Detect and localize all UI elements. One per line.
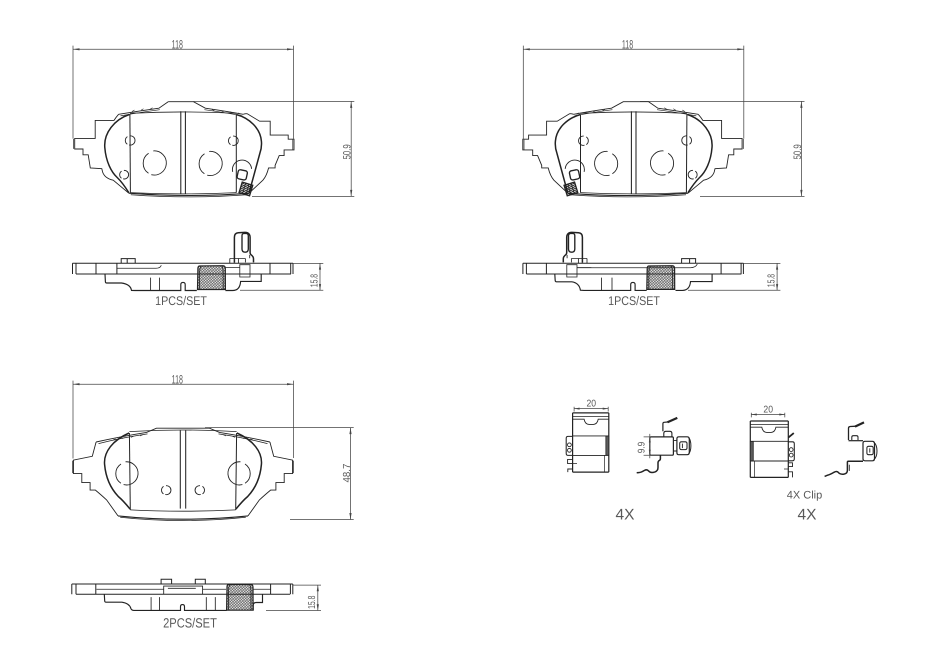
svg-text:118: 118 (622, 38, 633, 52)
svg-text:50.9: 50.9 (342, 144, 354, 159)
svg-text:15.8: 15.8 (767, 274, 778, 288)
svg-text:4X: 4X (798, 507, 818, 524)
svg-text:20: 20 (763, 404, 773, 415)
svg-text:20: 20 (587, 399, 597, 410)
svg-text:15.8: 15.8 (309, 274, 320, 288)
svg-text:4X Clip: 4X Clip (787, 490, 822, 502)
svg-text:50.9: 50.9 (792, 144, 804, 159)
svg-text:2PCS/SET: 2PCS/SET (163, 615, 217, 630)
svg-text:118: 118 (172, 373, 183, 387)
svg-text:4X: 4X (616, 507, 636, 524)
svg-text:15.8: 15.8 (307, 595, 318, 609)
svg-text:1PCS/SET: 1PCS/SET (155, 294, 207, 308)
svg-text:118: 118 (172, 38, 183, 52)
svg-text:1PCS/SET: 1PCS/SET (608, 294, 660, 308)
svg-text:9.9: 9.9 (637, 442, 648, 454)
svg-text:48.7: 48.7 (342, 463, 353, 482)
